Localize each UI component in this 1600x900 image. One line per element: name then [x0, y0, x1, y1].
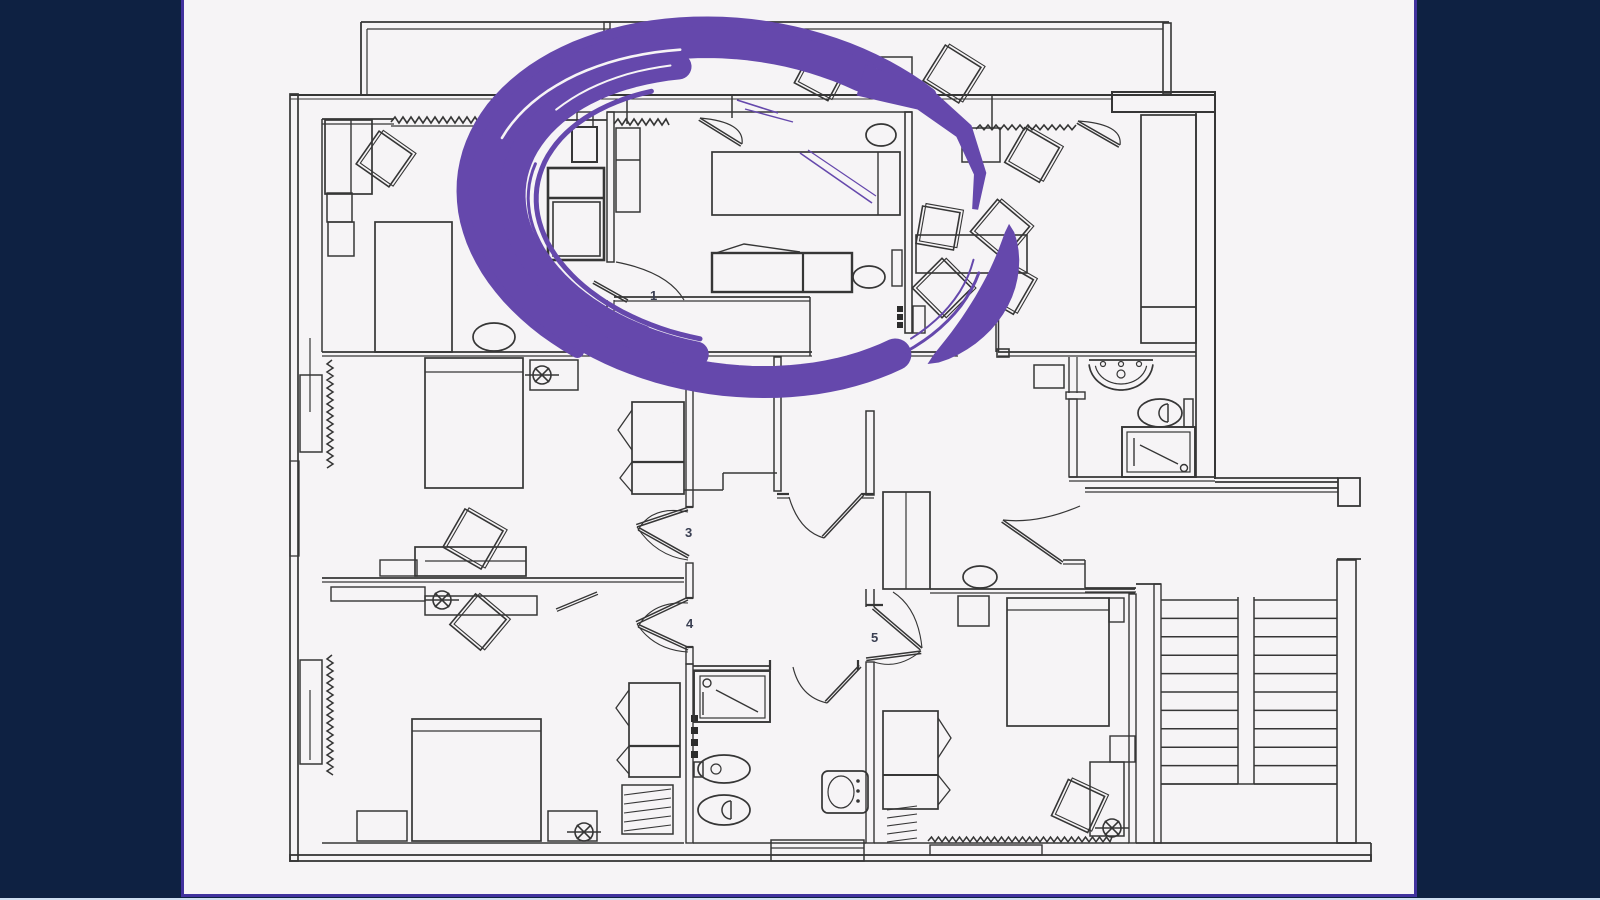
svg-text:3: 3: [685, 525, 692, 540]
svg-text:5: 5: [871, 630, 878, 645]
svg-text:4: 4: [686, 616, 694, 631]
svg-text:1: 1: [650, 288, 657, 303]
